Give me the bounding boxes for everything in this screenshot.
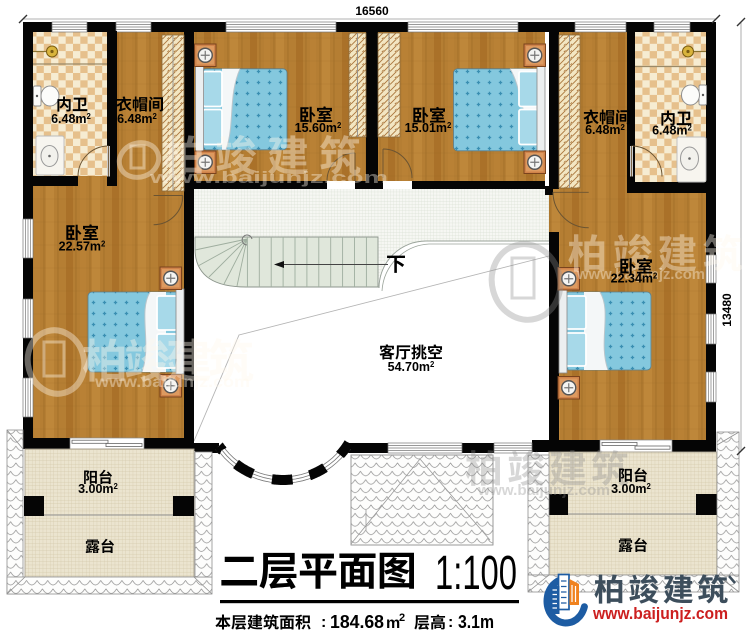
svg-text:www.baijunjz.com: www.baijunjz.com bbox=[94, 374, 250, 391]
svg-text:2: 2 bbox=[399, 612, 405, 624]
svg-text:54.70m2: 54.70m2 bbox=[388, 360, 435, 374]
svg-text:www.baijunjz.com: www.baijunjz.com bbox=[148, 168, 388, 187]
svg-text::: : bbox=[321, 614, 326, 631]
svg-text:22.57m2: 22.57m2 bbox=[59, 240, 106, 254]
svg-text:6.48m2: 6.48m2 bbox=[652, 124, 692, 138]
svg-text:3.1m: 3.1m bbox=[458, 612, 494, 632]
svg-text:15.01m2: 15.01m2 bbox=[405, 121, 452, 135]
svg-text:13480: 13480 bbox=[720, 293, 734, 327]
svg-text:15.60m2: 15.60m2 bbox=[295, 121, 342, 135]
svg-text:3.00m2: 3.00m2 bbox=[78, 482, 118, 496]
svg-text:6.48m2: 6.48m2 bbox=[585, 123, 625, 137]
svg-text:6.48m2: 6.48m2 bbox=[51, 112, 91, 126]
svg-text::: : bbox=[448, 614, 453, 631]
svg-text:3.00m2: 3.00m2 bbox=[611, 482, 651, 496]
svg-text:1:100: 1:100 bbox=[435, 547, 517, 600]
svg-text:22.34m2: 22.34m2 bbox=[611, 272, 658, 286]
svg-text:184.68: 184.68 bbox=[330, 612, 384, 632]
svg-text:www.baijunjz.com: www.baijunjz.com bbox=[592, 605, 728, 623]
svg-text:6.48m2: 6.48m2 bbox=[117, 112, 157, 126]
svg-text:16560: 16560 bbox=[355, 4, 389, 18]
svg-text:www.baijunjz.com: www.baijunjz.com bbox=[477, 482, 610, 499]
